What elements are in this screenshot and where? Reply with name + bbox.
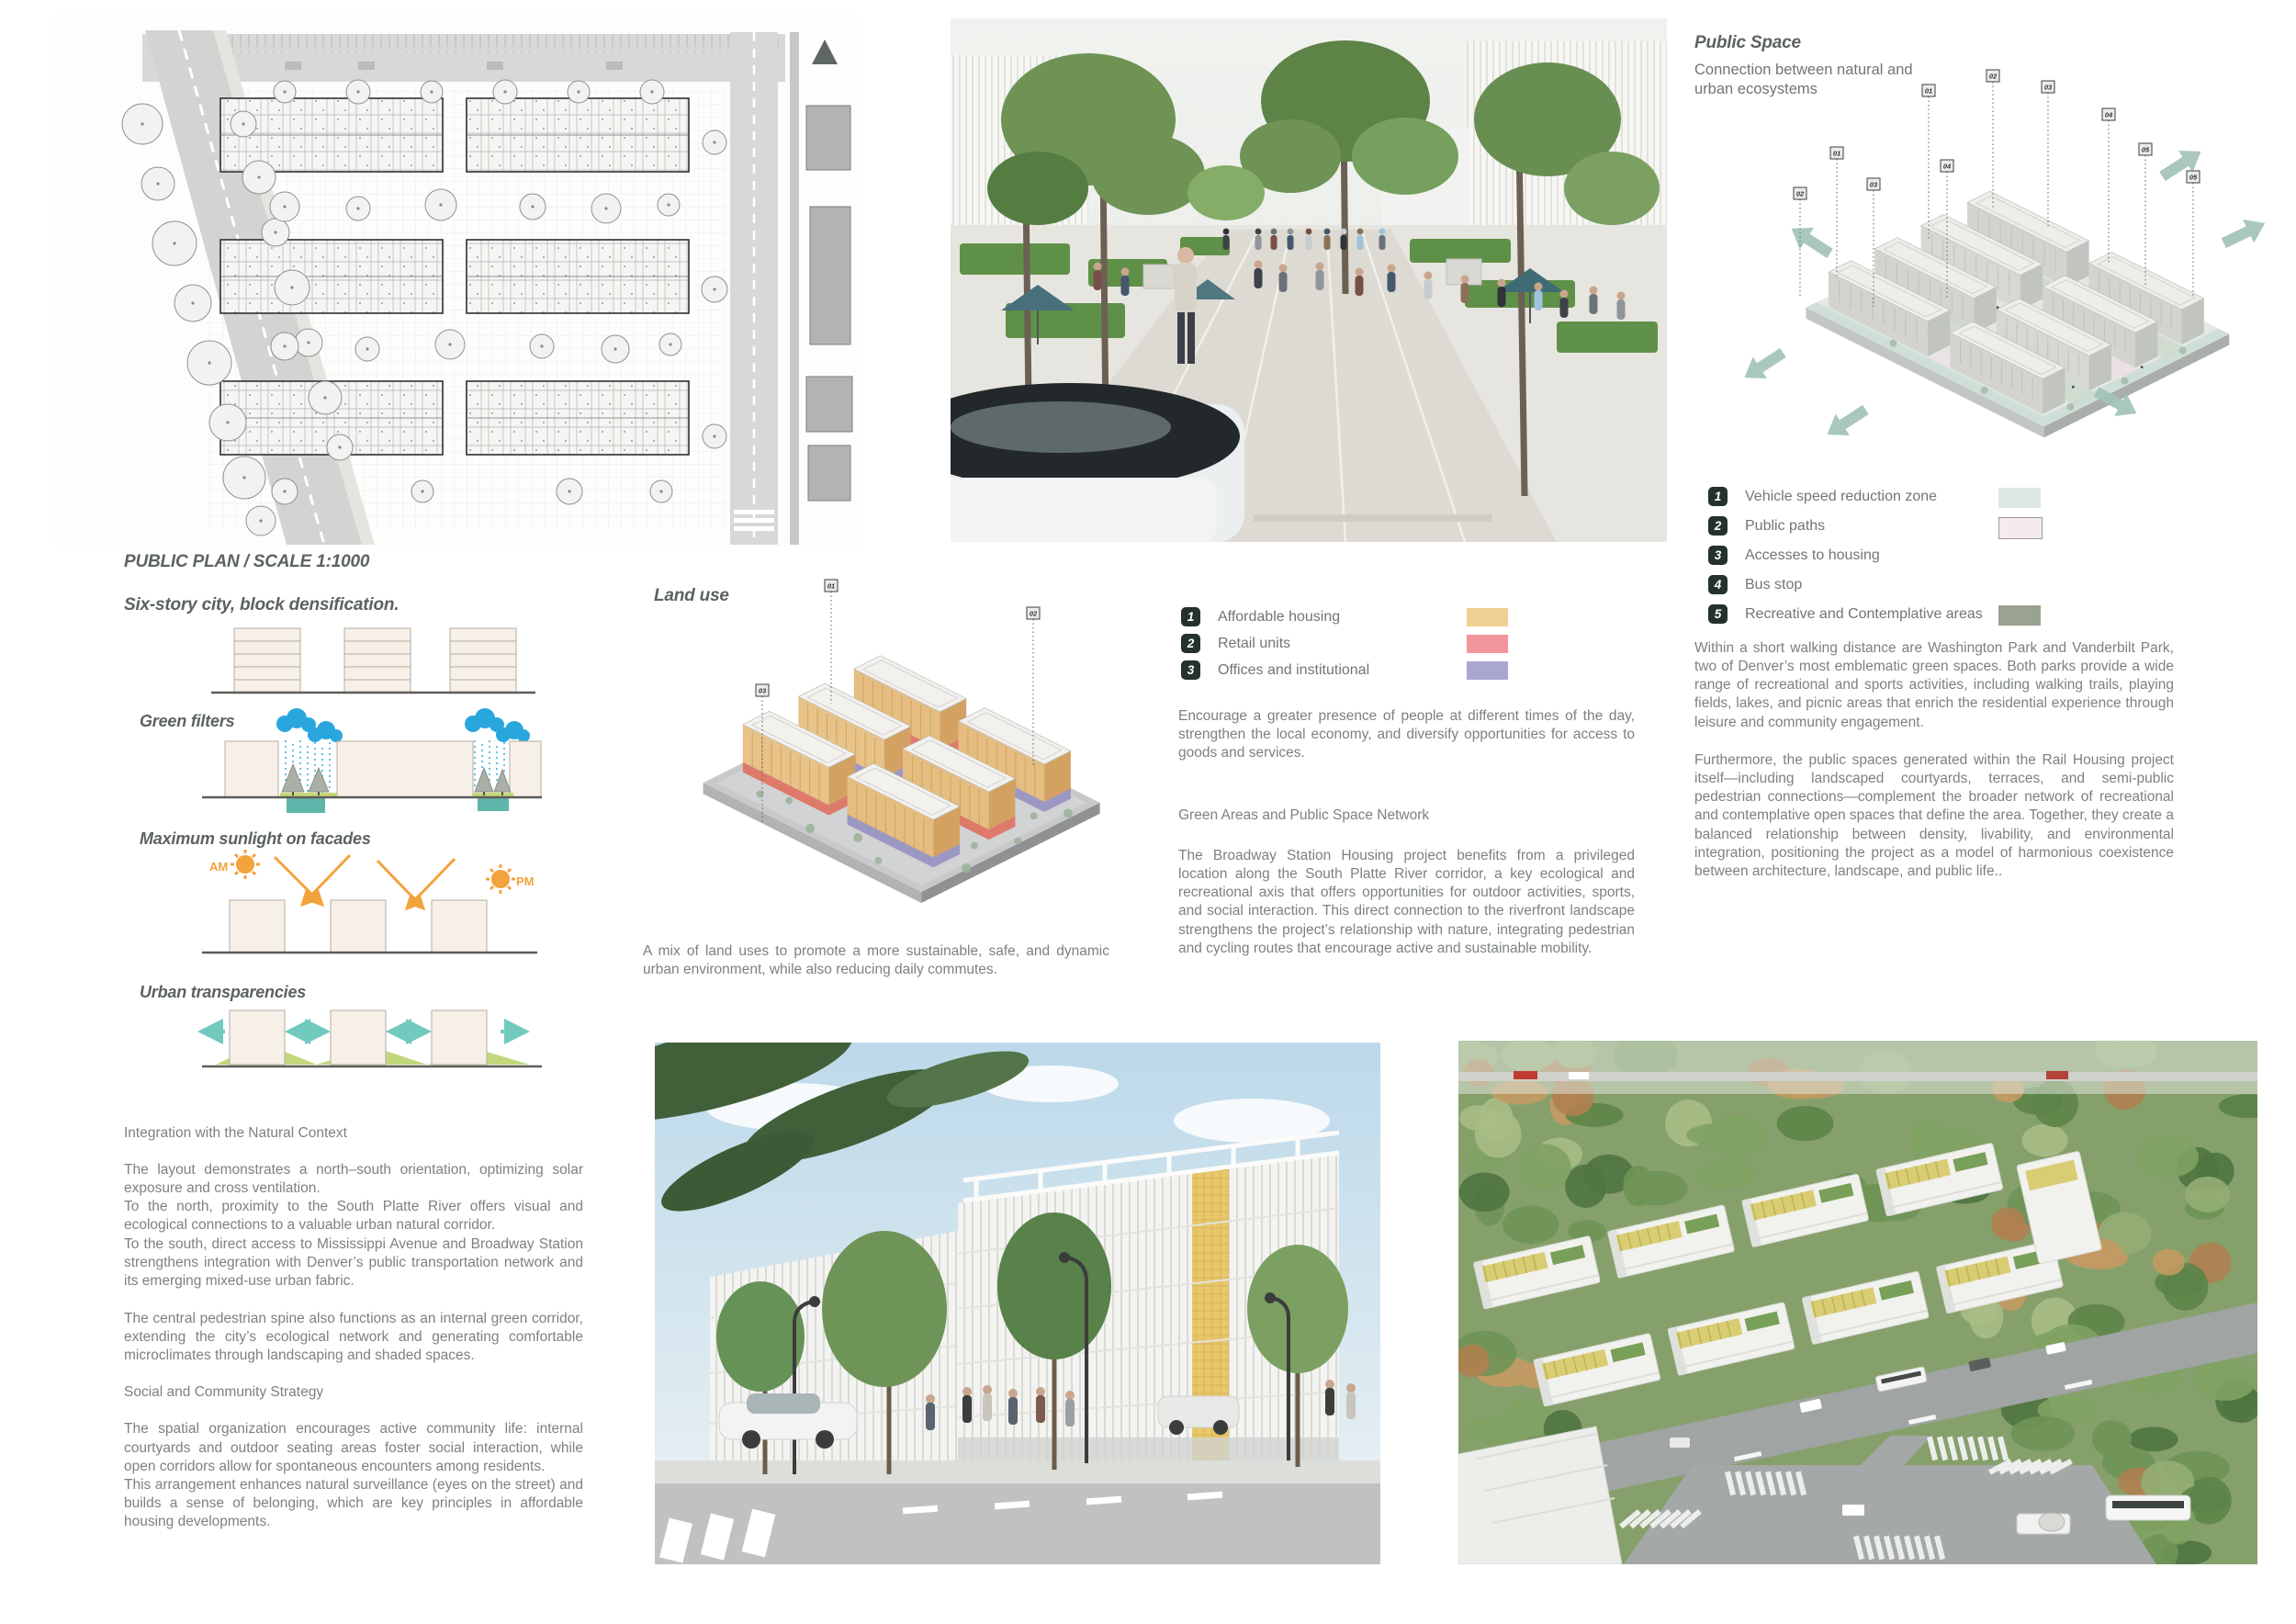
land-use-axonometric: 010203 [647,565,1120,955]
left-para-3: To the south, direct access to Mississip… [124,1235,583,1291]
right-para-1: Within a short walking distance are Wash… [1694,639,2174,732]
legend-label: Recreative and Contemplative areas [1745,606,1983,623]
svg-text:03: 03 [759,687,767,695]
left-para-5: The spatial organization encourages acti… [124,1420,583,1475]
svg-text:01: 01 [827,582,835,591]
densification-title: Six-story city, block densification. [124,595,399,615]
sunlight-diagram [197,850,546,974]
left-para-6: This arrangement enhances natural survei… [124,1476,583,1531]
left-heading-2: Social and Community Strategy [124,1384,583,1401]
densification-diagram [207,617,546,705]
land-use-caption: A mix of land uses to promote a more sus… [643,942,1109,979]
street-render-photo [655,1043,1380,1564]
legend-swatch-recreative [1998,605,2041,626]
legend-row-accesses: 3 Accesses to housing [1708,546,1880,565]
legend-row-speed-zone: 1 Vehicle speed reduction zone [1708,487,1937,506]
public-space-title: Public Space [1694,33,1801,53]
legend-label: Bus stop [1745,577,1802,593]
legend-row-public-paths: 2 Public paths [1708,516,1825,536]
svg-text:03: 03 [1870,181,1878,189]
mixer-truck [2017,1513,2070,1534]
legend-row-recreative: 5 Recreative and Contemplative areas [1708,604,1983,624]
public-plan-drawing [55,14,859,547]
center-para-2: The Broadway Station Housing project ben… [1178,847,1635,958]
legend-label: Vehicle speed reduction zone [1745,489,1937,505]
plaza-render-photo [951,18,1667,542]
center-heading: Green Areas and Public Space Network [1178,806,1635,825]
legend-number-badge: 2 [1181,634,1200,653]
sun-icon [231,850,260,879]
svg-text:02: 02 [1796,190,1805,198]
plan-caption: PUBLIC PLAN / SCALE 1:1000 [124,552,369,572]
legend-label: Public paths [1745,518,1825,535]
svg-text:05: 05 [2189,174,2198,182]
legend-row-retail: 2 Retail units [1181,634,1290,653]
legend-swatch-retail [1467,635,1508,653]
legend-label: Offices and institutional [1218,662,1369,679]
legend-number-badge: 3 [1708,546,1728,565]
svg-text:01: 01 [1833,150,1840,158]
svg-text:04: 04 [1943,163,1952,171]
legend-swatch-offices [1467,661,1508,680]
legend-number-badge: 5 [1708,604,1728,624]
legend-label: Retail units [1218,636,1290,652]
svg-text:02: 02 [1030,610,1038,618]
legend-number-badge: 1 [1708,487,1728,506]
left-para-4: The central pedestrian spine also functi… [124,1310,583,1365]
legend-swatch-public-paths [1998,517,2043,539]
legend-row-affordable: 1 Affordable housing [1181,607,1340,626]
green-filters-diagram [197,698,546,836]
svg-text:01: 01 [1925,87,1932,96]
center-para-1: Encourage a greater presence of people a… [1178,707,1635,762]
legend-label: Accesses to housing [1745,547,1880,564]
public-space-axonometric: 01020304050102030405 [1716,59,2276,472]
left-text-block: Integration with the Natural Context The… [124,1125,583,1551]
svg-text:02: 02 [1989,73,1998,81]
legend-number-badge: 3 [1181,660,1200,680]
left-heading-1: Integration with the Natural Context [124,1125,583,1142]
legend-swatch-speed-zone [1998,488,2041,508]
legend-number-badge: 2 [1708,516,1728,536]
sun-icon [486,864,515,894]
svg-text:04: 04 [2105,111,2113,119]
legend-number-badge: 4 [1708,575,1728,594]
left-para-1: The layout demonstrates a north–south or… [124,1161,583,1198]
right-para-2: Furthermore, the public spaces generated… [1694,751,2174,881]
car [951,383,1244,542]
svg-text:05: 05 [2142,146,2150,154]
legend-number-badge: 1 [1181,607,1200,626]
svg-text:03: 03 [2044,84,2053,92]
left-para-2: To the north, proximity to the South Pla… [124,1198,583,1235]
legend-row-offices: 3 Offices and institutional [1181,660,1369,680]
legend-label: Affordable housing [1218,609,1340,626]
presentation-board: PUBLIC PLAN / SCALE 1:1000 Six-story cit… [0,0,2296,1624]
legend-row-bus-stop: 4 Bus stop [1708,575,1802,594]
legend-swatch-affordable [1467,608,1508,626]
aerial-render-photo [1458,1041,2257,1564]
transparencies-diagram [197,997,546,1084]
sunlight-title: Maximum sunlight on facades [140,829,371,849]
